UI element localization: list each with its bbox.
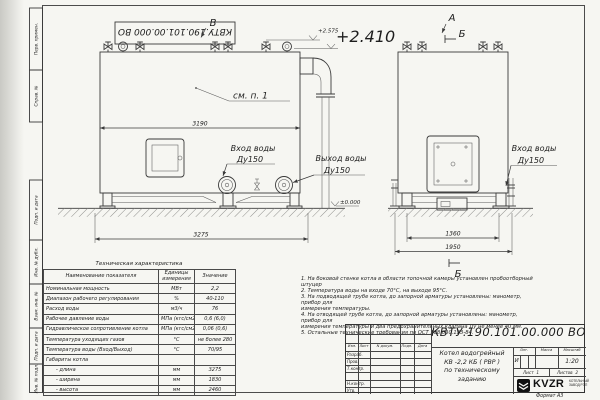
spec-row: Диапазон рабочего регулирования%40-110 — [44, 294, 236, 304]
valve-icon — [479, 42, 487, 52]
spec-row: Номинальная мощностьМВт2,2 — [44, 284, 236, 294]
dim-3275: 3275 — [193, 232, 208, 239]
tb-product-name-line2: КВ -2,2 КБ ( РВР ) — [431, 359, 513, 368]
valve-icon — [494, 42, 502, 52]
spec-table-body: Наименование показателяЕдиницы измерения… — [44, 270, 236, 396]
tb-row-tkontr: Т.контр. — [347, 366, 370, 371]
tb-col-docum: N докум. — [370, 344, 400, 348]
spec-cell: 70/95 — [195, 345, 236, 355]
tb-mass-header: Масса — [535, 348, 558, 352]
logo-caption: КОТЕЛЬНЫЙ ЗАВОД РЭП — [569, 380, 589, 388]
tb-sheets-number: 2 — [575, 370, 578, 375]
spec-cell: 40-110 — [195, 294, 236, 304]
spec-cell: МПа (кгс/см2) — [159, 314, 195, 324]
spec-cell: °С — [159, 345, 195, 355]
tb-sheet-number: 1 — [536, 370, 539, 375]
spec-cell: - высота — [44, 385, 159, 395]
spec-cell: Температура воды (Вход/Выход) — [44, 345, 159, 355]
spec-cell: мм — [159, 375, 195, 385]
spec-row: Температура воды (Вход/Выход)°С70/95 — [44, 345, 236, 355]
valve-icon — [104, 42, 112, 52]
furnace-door-front — [427, 136, 479, 192]
inlet-pipe-icon — [506, 178, 516, 206]
tb-product-name-line3: по техническому заданию — [431, 367, 513, 384]
spec-cell: м3/ч — [159, 304, 195, 314]
spec-row: - ширинамм1830 — [44, 375, 236, 385]
spec-cell: 76 — [195, 304, 236, 314]
tb-col-podp: Подп. — [400, 344, 414, 348]
outlet-label: Выход воды — [316, 154, 367, 163]
spec-cell: мм — [159, 365, 195, 375]
spec-row: - длинамм3275 — [44, 365, 236, 375]
spec-row: Рабочее давление водыМПа (кгс/см2)0,6 (6… — [44, 314, 236, 324]
elevation-zero: ±0.000 — [340, 200, 361, 206]
valve-icon — [136, 42, 144, 52]
spec-table: Наименование показателяЕдиницы измерения… — [43, 269, 236, 396]
view-a-label: А — [448, 13, 456, 24]
inlet2-dn: Ду150 — [517, 156, 544, 165]
spec-cell: Габариты котла — [44, 355, 159, 365]
boiler-side-view: 3190 — [100, 42, 335, 208]
valve-icon — [211, 42, 219, 52]
spec-cell: Гидравлическое сопротивление котла — [44, 324, 159, 334]
spec-cell: 0,06 (0,6) — [195, 324, 236, 334]
tb-row-razrab: Разраб. — [347, 352, 370, 357]
outlet-callout: Выход воды Ду150 — [293, 154, 366, 183]
margin-label: Справ. № — [34, 85, 40, 106]
spec-row: Габариты котла — [44, 355, 236, 365]
spec-cell: МВт — [159, 284, 195, 294]
spec-cell: - длина — [44, 365, 159, 375]
valve-icon — [418, 42, 426, 52]
elevation-marks: +2.575 +2.410 ±0.000 — [266, 27, 395, 206]
dim-1950: 1950 — [445, 244, 460, 251]
margin-label: Взам. инв. № — [34, 291, 40, 321]
inlet-flange-icon — [219, 177, 236, 194]
tb-sheets-label: Листов — [557, 370, 573, 375]
drawing-sheet: Перв. примен. Справ. № Подп. и дата Инв.… — [0, 0, 600, 400]
tb-sheets-cell: Листов 2 — [549, 370, 586, 375]
outlet-flange-icon — [276, 177, 293, 194]
spec-cell: Температура уходящих газов — [44, 334, 159, 344]
spec-cell: 2,2 — [195, 284, 236, 294]
shutoff-valve-icons — [104, 42, 502, 52]
valve-icon — [224, 42, 232, 52]
margin-label: Инв. № дубл. — [34, 247, 40, 276]
spec-header-cell: Наименование показателя — [44, 270, 159, 284]
spec-cell: Расход воды — [44, 304, 159, 314]
tb-scale-value: 1:20 — [558, 358, 586, 365]
dim-1360: 1360 — [445, 231, 460, 238]
margin-label: Подп. и дата — [34, 195, 40, 225]
spec-cell: мм — [159, 385, 195, 395]
tb-product-name: Котел водогрейный КВ -2,2 КБ ( РВР ) по … — [431, 350, 513, 384]
kvzr-logo-icon — [517, 379, 530, 392]
margin-label: Инв. № подл. — [34, 364, 40, 394]
inlet2-callout: Вход воды Ду150 — [506, 144, 557, 186]
spec-cell: 1830 — [195, 375, 236, 385]
tb-row-utv: Утв. — [347, 388, 370, 393]
spec-cell: 3275 — [195, 365, 236, 375]
inlet2-label: Вход воды — [512, 144, 557, 153]
spec-header-cell: Значение — [195, 270, 236, 284]
spec-row: Расход водым3/ч76 — [44, 304, 236, 314]
tb-product-name-line1: Котел водогрейный — [431, 350, 513, 359]
logo-caption-line2: ЗАВОД РЭП — [569, 383, 587, 387]
margin-label: Перв. примен. — [34, 23, 40, 55]
spec-row: Гидравлическое сопротивление котлаМПа (к… — [44, 324, 236, 334]
inlet-label: Вход воды — [231, 144, 276, 153]
spec-cell: Рабочее давление воды — [44, 314, 159, 324]
scan-edge-shadow — [0, 0, 24, 400]
manufacturer-logo: KVZR КОТЕЛЬНЫЙ ЗАВОД РЭП — [517, 378, 585, 392]
note-line: 3. На подводящей трубе котла, до запорно… — [301, 294, 537, 306]
furnace-door-side — [146, 139, 184, 177]
spec-cell: Диапазон рабочего регулирования — [44, 294, 159, 304]
title-block: Изм. Лист N докум. Подп. Дата Разраб. Пр… — [345, 324, 585, 393]
dim-3190: 3190 — [192, 121, 207, 128]
spec-cell — [195, 355, 236, 365]
support-frame — [100, 193, 302, 208]
spec-row: Температура уходящих газов°Сне более 280 — [44, 334, 236, 344]
spec-cell: °С — [159, 334, 195, 344]
section-b-label-top: Б — [459, 29, 466, 40]
spec-cell: не более 280 — [195, 334, 236, 344]
drain-valve-icon — [255, 179, 260, 190]
tb-row-nkontr: Н.контр. — [347, 381, 370, 386]
see-note-label: см. п. 1 — [233, 92, 268, 102]
tb-doc-number: КВТУ.190.101.00.000 ВО — [431, 325, 586, 347]
note-line: 4. На отводящей трубе котла, до запорной… — [301, 312, 537, 324]
inlet-dn: Ду150 — [236, 155, 263, 164]
boiler-end-view — [390, 52, 516, 210]
tb-sheet-cell: Лист 1 — [513, 370, 549, 375]
tb-row-prov: Пров. — [347, 359, 370, 364]
spec-cell: - ширина — [44, 375, 159, 385]
view-b-label: В — [210, 18, 217, 29]
inlet-callout: Вход воды Ду150 — [223, 144, 275, 176]
spec-row: - высотамм2460 — [44, 385, 236, 395]
spec-cell: 0,6 (6,0) — [195, 314, 236, 324]
margin-label: Подп. и дата — [34, 331, 40, 361]
valve-icon — [403, 42, 411, 52]
tb-col-izm: Изм. — [346, 344, 358, 348]
tb-col-list: Лист — [358, 344, 370, 348]
tb-scale-header: Масштаб — [558, 348, 586, 352]
format-note: Формат А3 — [536, 394, 563, 399]
logo-text: KVZR — [533, 378, 564, 390]
tb-lit-value: И — [513, 358, 520, 364]
outlet-dn: Ду150 — [323, 166, 350, 175]
note-line: 1. На боковой стенке котла в области топ… — [301, 276, 537, 288]
spec-cell: % — [159, 294, 195, 304]
tb-lit-header: Лит. — [513, 348, 535, 352]
tb-col-data: Дата — [414, 344, 431, 348]
see-note-callout: см. п. 1 — [195, 87, 290, 101]
elevation-2410: +2.410 — [336, 27, 395, 46]
flue-outlet — [300, 58, 335, 208]
spec-table-title: Техническая характеристика — [43, 261, 235, 267]
dimensions: 3275 1360 1950 — [95, 213, 512, 255]
valve-icon — [262, 42, 270, 52]
spec-cell: 2460 — [195, 385, 236, 395]
ground-hatching — [58, 208, 533, 217]
spec-cell — [159, 355, 195, 365]
tb-sheet-label: Лист — [523, 370, 534, 375]
spec-cell: Номинальная мощность — [44, 284, 159, 294]
spec-header-cell: Единицы измерения — [159, 270, 195, 284]
spec-cell: МПа (кгс/см2) — [159, 324, 195, 334]
